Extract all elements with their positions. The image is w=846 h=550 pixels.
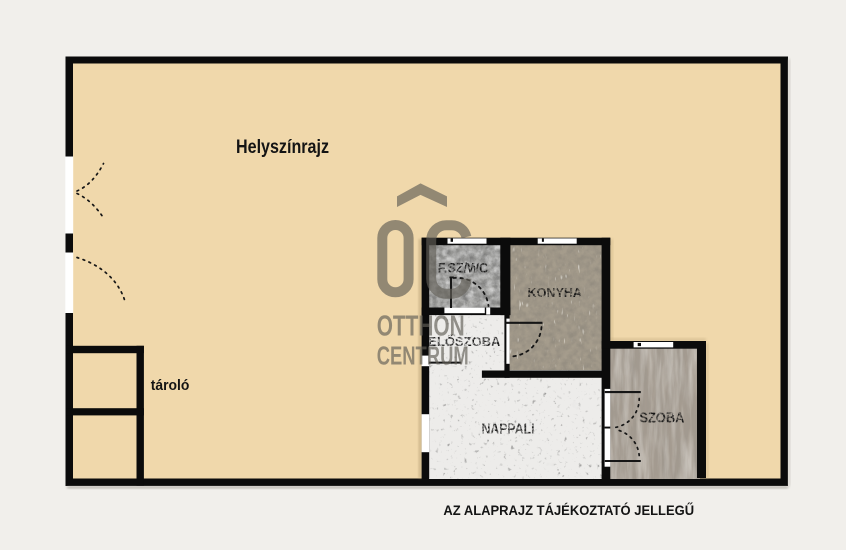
svg-text:OTTHON: OTTHON (377, 310, 465, 342)
svg-text:SZOBA: SZOBA (639, 411, 684, 427)
svg-text:F.SZ/WC: F.SZ/WC (438, 261, 489, 276)
svg-text:KONYHA: KONYHA (528, 286, 583, 300)
svg-text:NAPPALI: NAPPALI (482, 421, 535, 437)
svg-text:AZ ALAPRAJZ TÁJÉKOZTATÓ JELLEG: AZ ALAPRAJZ TÁJÉKOZTATÓ JELLEGŰ (443, 501, 694, 518)
svg-text:Helyszínrajz: Helyszínrajz (236, 137, 329, 158)
svg-text:CENTRUM: CENTRUM (377, 341, 469, 371)
svg-text:tároló: tároló (151, 378, 190, 394)
